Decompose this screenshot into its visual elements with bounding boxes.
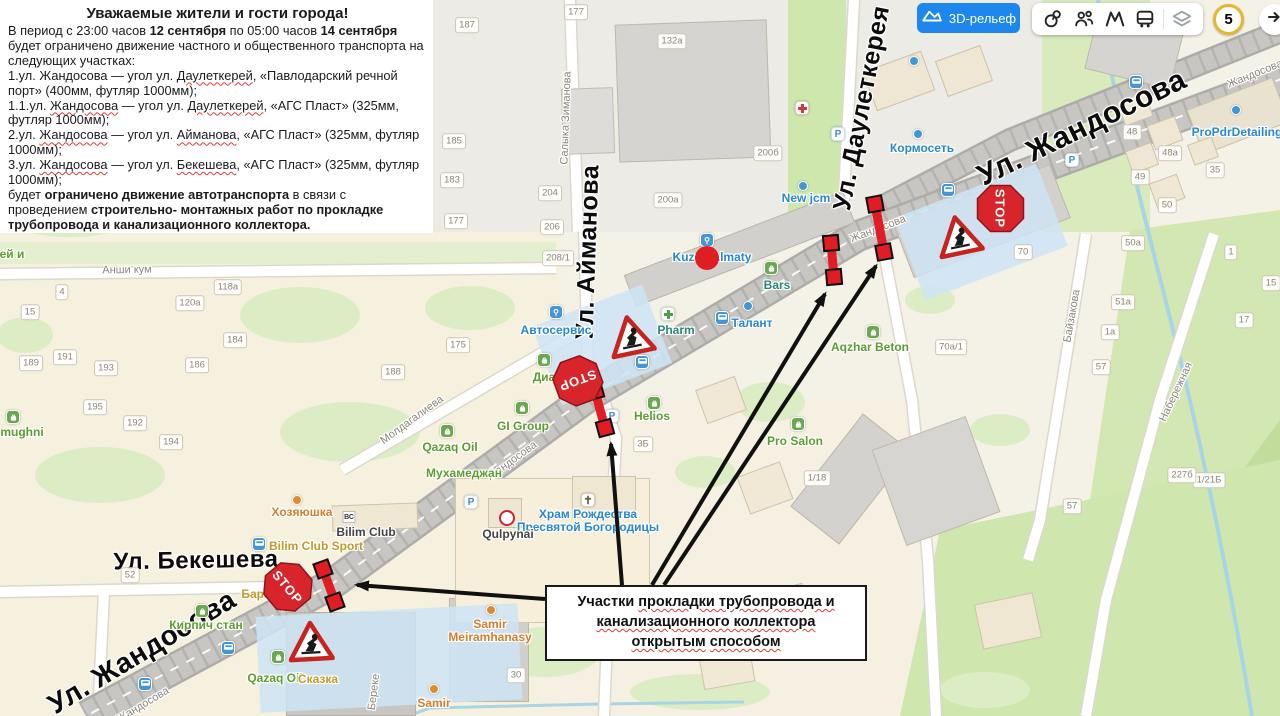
layers-icon[interactable]	[1169, 6, 1195, 32]
house-number: 183	[440, 172, 464, 188]
text-run: способом	[710, 634, 781, 650]
house-number: 177	[444, 213, 468, 229]
text-run: ограничено движение автотранспорта	[45, 187, 290, 202]
poi-label[interactable]: New jcm	[782, 192, 831, 205]
house-number: 184	[223, 332, 247, 348]
transit-stop-icon[interactable]	[635, 355, 649, 369]
text-run: 3.ул.	[8, 157, 39, 172]
house-number: 185	[442, 133, 466, 149]
metro-icon[interactable]	[1102, 6, 1128, 32]
poi-label[interactable]: Хозяюшка	[272, 506, 333, 519]
house-number: 52	[121, 567, 140, 583]
house-number: 57	[1063, 498, 1082, 514]
callout-line: Участки прокладки трубопровода и	[551, 592, 861, 612]
text-run: Участки	[577, 594, 638, 610]
house-number: 17	[1235, 312, 1254, 328]
notice-title: Уважаемые жители и гости города!	[8, 5, 427, 22]
poi-label[interactable]: Диа	[533, 371, 556, 384]
transit-stop-icon[interactable]	[1129, 75, 1143, 89]
house-number: 192	[123, 415, 147, 431]
street-label-major: Ул. Жандосова	[972, 63, 1192, 194]
house-number: 175	[446, 337, 470, 353]
map-mode-toolbar	[1032, 3, 1203, 35]
shop-icon[interactable]	[6, 410, 20, 424]
pharmacy-icon[interactable]	[661, 307, 675, 321]
house-number: 193	[94, 360, 118, 376]
notice-paragraph: 1.ул. Жандосова — угол ул. Даулеткерей, …	[8, 69, 427, 99]
poi-dot-icon[interactable]	[486, 605, 496, 615]
poi-label[interactable]: Helios	[634, 410, 670, 423]
house-number: 200a	[653, 192, 682, 208]
poi-dot-icon[interactable]	[909, 56, 919, 66]
house-number: 70	[1014, 244, 1033, 260]
notice-paragraph: будет ограничено движение автотранспорта…	[8, 188, 427, 233]
house-number: 3Б	[633, 436, 653, 452]
callout-box: Участки прокладки трубопровода иканализа…	[545, 585, 867, 661]
shop-icon[interactable]	[764, 261, 778, 275]
house-number: 206	[540, 219, 564, 235]
text-run: прокладки трубопровода и	[638, 594, 834, 610]
text-run: — угол ул.	[108, 127, 177, 142]
poi-dot-icon[interactable]	[743, 301, 753, 311]
text-run: Жандосова	[39, 127, 107, 142]
qulpynai-logo-icon[interactable]	[499, 510, 515, 526]
house-number: 187	[455, 17, 479, 33]
transit-stop-icon[interactable]	[138, 677, 152, 691]
text-run: Жандосова	[50, 98, 118, 113]
poi-label[interactable]: Храм Рождества Пресвятой Богородицы	[517, 508, 659, 534]
poi-label[interactable]: Samir	[417, 697, 450, 710]
relief-label: 3D-рельеф	[949, 11, 1016, 26]
poi-label[interactable]: Сказка	[298, 673, 338, 686]
relief-3d-button[interactable]: 3D-рельеф	[917, 3, 1020, 33]
house-number: 1/21Б	[1193, 472, 1226, 488]
text-run: Даулеткерей	[177, 68, 253, 83]
poi-label[interactable]: Samir Meiramhanasy	[448, 618, 531, 644]
poi-label[interactable]: Автосервис	[521, 324, 592, 337]
poi-label[interactable]: Qazaq Oil	[247, 672, 302, 685]
text-run: 1.1.ул.	[8, 98, 50, 113]
house-number: 1/18	[804, 470, 831, 486]
parking-icon[interactable]: P	[464, 495, 478, 509]
poi-dot-icon[interactable]	[798, 181, 808, 191]
notice-paragraph: 3.ул. Жандосова — угол ул. Бекешева, «АГ…	[8, 158, 427, 188]
transit-stop-icon[interactable]	[715, 311, 729, 325]
text-run: 12 сентября	[150, 23, 227, 38]
house-number: 1	[1224, 244, 1237, 260]
text-run: будет	[8, 187, 45, 202]
notice-body: В период с 23:00 часов 12 сентября по 05…	[8, 24, 427, 233]
poi-label[interactable]: Bilim Club Sport	[269, 540, 363, 553]
street-label-minor: Анши кум	[102, 264, 152, 277]
parking-icon[interactable]: P	[1065, 153, 1079, 167]
house-number: 200б	[753, 145, 782, 161]
map-screenshot: Ул. ЖандосоваУл. ДаулеткереяУл. Айманова…	[0, 0, 1280, 716]
shop-icon[interactable]	[866, 325, 880, 339]
poi-label[interactable]: Qulpynai	[482, 528, 533, 541]
notice-paragraph: В период с 23:00 часов 12 сентября по 05…	[8, 24, 427, 69]
house-number: 35	[1206, 162, 1225, 178]
house-number: 51a	[1111, 294, 1135, 310]
house-number: 48a	[1158, 145, 1182, 161]
house-number: 186	[185, 357, 209, 373]
street-label-minor: Береке	[366, 673, 382, 711]
house-number: 188	[381, 364, 405, 380]
text-run: будет ограничено движение частного и общ…	[8, 38, 424, 68]
shop-icon[interactable]	[271, 650, 285, 664]
poi-label[interactable]: Bilim Club	[336, 526, 395, 539]
street-label-minor: Набережная	[1157, 360, 1195, 423]
house-number: 15	[21, 304, 40, 320]
parking-icon[interactable]: P	[605, 409, 619, 423]
text-run: Даулеткерей	[187, 98, 263, 113]
toolbar-divider	[1163, 9, 1164, 29]
street-label-minor: Салыка Зиманова	[558, 71, 573, 165]
poi-label[interactable]: Кормосеть	[890, 142, 954, 155]
alerts-count: 5	[1224, 11, 1232, 28]
poi-label[interactable]: ProPdrDetailing	[1192, 126, 1280, 139]
house-number: 48	[1123, 124, 1142, 140]
street-label-minor: Байзакова	[1061, 289, 1082, 344]
car-service-icon[interactable]: ⚲	[700, 233, 714, 247]
street-label-minor: Молдагалиева	[378, 393, 445, 447]
street-label-minor: Жандосова	[1226, 57, 1280, 90]
poi-label[interactable]: Талант	[731, 317, 772, 330]
poi-label[interactable]: mughni	[0, 426, 43, 439]
house-number: 227б	[1167, 467, 1196, 483]
poi-label[interactable]: Кирпич стан	[169, 619, 242, 632]
landmarks-icon[interactable]	[1040, 6, 1066, 32]
house-number: 118a	[214, 279, 242, 295]
callout-line: канализационного коллектора	[551, 612, 861, 632]
shop-icon[interactable]	[515, 401, 529, 415]
poi-label[interactable]: Бара	[241, 588, 270, 601]
text-run: — угол ул.	[108, 157, 177, 172]
text-run: — угол ул.	[118, 98, 187, 113]
poi-dot-icon[interactable]	[913, 129, 923, 139]
text-run: Бекешева	[177, 157, 237, 172]
callout-line: открытым способом	[551, 632, 861, 652]
shop-icon[interactable]	[440, 424, 454, 438]
poi-label[interactable]: Qazaq Oil	[422, 441, 477, 454]
poi-label[interactable]: Kuzov Almaty	[673, 251, 752, 264]
house-number: 189	[19, 355, 43, 371]
text-run: 14 сентября	[321, 23, 398, 38]
house-number: 194	[159, 434, 183, 450]
shop-icon[interactable]	[791, 417, 805, 431]
shop-icon[interactable]	[537, 353, 551, 367]
login-icon	[1266, 8, 1280, 31]
poi-label[interactable]: Bars	[764, 279, 791, 292]
car-service-icon[interactable]: ⚲	[549, 305, 563, 319]
poi-dot-icon[interactable]	[292, 495, 302, 505]
relief-icon	[921, 9, 943, 28]
text-run: В период с 23:00 часов	[8, 23, 150, 38]
text-run: 2.ул.	[8, 127, 39, 142]
transit-stop-icon[interactable]	[941, 183, 955, 197]
house-number: 132a	[657, 33, 686, 49]
poi-label[interactable]: Aqzhar Beton	[831, 341, 909, 354]
house-number: 191	[53, 349, 77, 365]
transit-stop-icon[interactable]	[221, 641, 235, 655]
alerts-count-badge[interactable]: 5	[1213, 4, 1244, 35]
house-number: 50a	[1121, 235, 1145, 251]
street-label-minor: Жандосова	[848, 213, 907, 245]
poi-dot-icon[interactable]	[1231, 105, 1241, 115]
house-number: 70a/1	[935, 339, 967, 355]
house-number: 1a	[1101, 324, 1120, 340]
poi-label[interactable]: Pharm	[657, 324, 694, 337]
house-number: 4	[55, 284, 68, 300]
poi-label[interactable]: GI Group	[497, 420, 549, 433]
house-number: 50	[1158, 197, 1177, 213]
text-run: Айманова	[177, 127, 237, 142]
notice-paragraph: 2.ул. Жандосова — угол ул. Айманова, «АГ…	[8, 128, 427, 158]
notice-paragraph: 1.1.ул. Жандосова — угол ул. Даулеткерей…	[8, 99, 427, 129]
poi-label[interactable]: Pro Salon	[767, 435, 823, 448]
bilim-club-logo-icon[interactable]: ВС	[343, 511, 356, 523]
shop-icon[interactable]	[195, 604, 209, 618]
text-run: Жандосова	[39, 157, 107, 172]
shop-icon[interactable]	[647, 396, 661, 410]
street-label-major: Ул. Айманова	[570, 164, 605, 339]
house-number: 204	[538, 185, 562, 201]
house-number: 30	[507, 667, 526, 683]
text-run: 1.ул. Жандосова — угол ул.	[8, 68, 177, 83]
notice-box: Уважаемые жители и гости города! В перио…	[0, 0, 433, 233]
poi-label[interactable]: ей и	[0, 248, 24, 261]
house-number: 195	[83, 399, 107, 415]
callout-text: Участки прокладки трубопровода иканализа…	[551, 592, 861, 652]
parking-icon[interactable]: P	[831, 127, 845, 141]
friends-icon[interactable]	[1071, 6, 1097, 32]
house-number: 208/1	[542, 250, 574, 266]
transit-stop-icon[interactable]	[252, 537, 266, 551]
house-number: 15	[1262, 275, 1280, 291]
text-run: канализационного коллектора	[597, 614, 816, 630]
street-label-major: Ул. Даулеткерея	[828, 3, 896, 213]
church-icon[interactable]: ✝	[581, 493, 595, 507]
house-number: 120a	[175, 295, 204, 311]
house-number: 57	[1092, 359, 1111, 375]
house-number: 49	[1131, 169, 1150, 185]
transport-icon[interactable]	[1132, 6, 1158, 32]
poi-label[interactable]: Мухамеджан	[426, 467, 502, 480]
text-run: открытым	[631, 634, 705, 650]
medical-icon[interactable]	[795, 101, 809, 115]
text-run: по 05:00 часов	[226, 23, 321, 38]
street-label-major: Ул. Жандосова	[42, 583, 241, 716]
poi-dot-icon[interactable]	[429, 684, 439, 694]
house-number: 177	[564, 4, 588, 20]
